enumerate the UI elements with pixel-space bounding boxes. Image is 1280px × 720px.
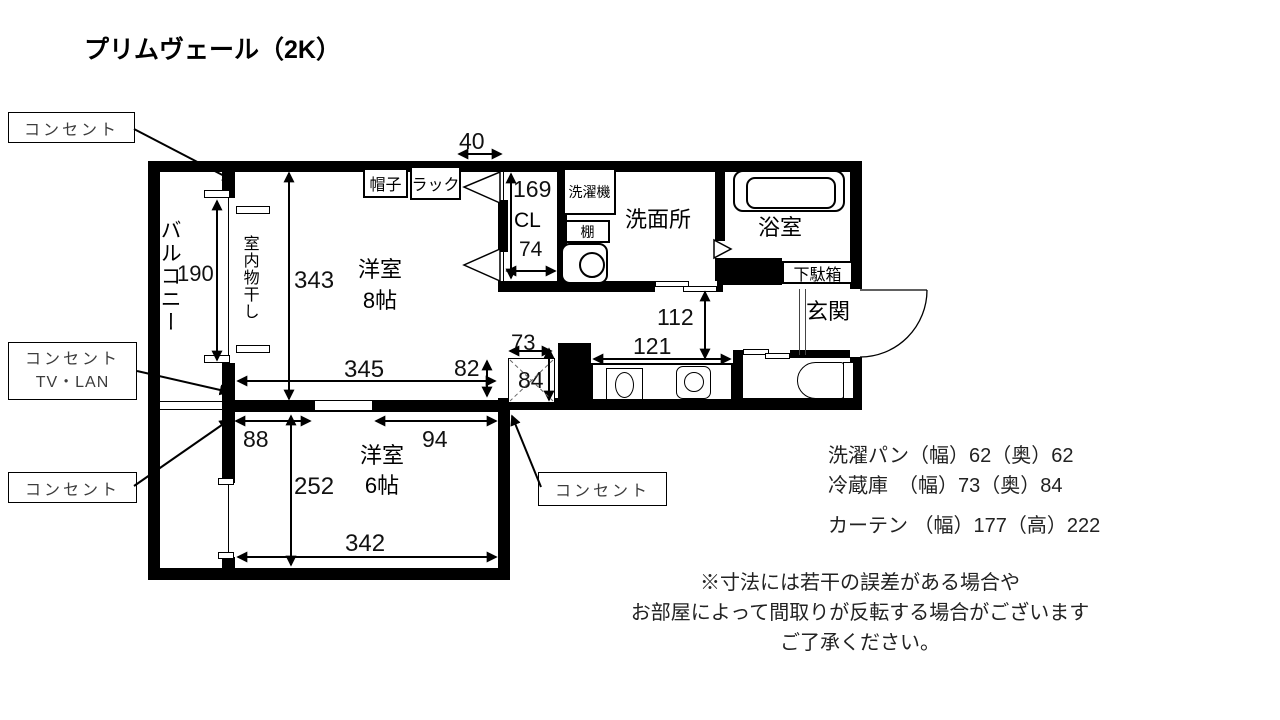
shoe-cabinet-label: 下駄箱 xyxy=(793,261,841,285)
dim-room6-depth: 252 xyxy=(294,473,334,501)
wall-closet-left-segment xyxy=(498,200,508,252)
washroom-sliding-door xyxy=(683,286,717,292)
rack-label: ラック xyxy=(412,171,460,195)
spec-line-laundry-pan: 洗濯パン（幅）62（奥）62 xyxy=(828,439,1074,468)
closet-door-swing-top xyxy=(464,172,500,203)
entrance-door xyxy=(860,290,927,357)
toilet-sliding-door xyxy=(765,353,790,359)
spec-line-curtain: カーテン （幅）177（高）222 xyxy=(828,509,1100,538)
dim-room8-corner: 82 xyxy=(454,355,480,382)
callout-pointer-lines xyxy=(134,129,541,487)
outlet-callout-top-left: コンセント xyxy=(8,112,135,143)
wall-bottom xyxy=(148,568,510,580)
toilet-bowl xyxy=(797,362,844,399)
washroom-label: 洗面所 xyxy=(625,208,691,232)
room8-size: 8帖 xyxy=(350,289,410,313)
room6-size: 6帖 xyxy=(352,474,412,498)
stove-burner xyxy=(684,372,704,392)
rack-box: ラック xyxy=(410,166,461,200)
dim-room8-width: 345 xyxy=(344,356,384,384)
hat-shelf-box: 帽子 xyxy=(363,168,408,198)
outlet-callout-label: コンセント xyxy=(25,476,120,500)
closet-label: CL xyxy=(514,209,541,232)
bathtub-inner xyxy=(746,177,836,209)
entrance-label: 玄関 xyxy=(806,300,850,324)
drying-pole-bracket-bottom xyxy=(236,345,270,353)
outlet-tv-lan-callout: コンセント TV・LAN xyxy=(8,342,137,400)
entrance-step-line-1 xyxy=(799,289,800,355)
shelf-label: 棚 xyxy=(581,222,595,242)
balcony-partition xyxy=(160,401,222,410)
dim-room6-wall-left: 88 xyxy=(243,426,269,453)
bathroom-label: 浴室 xyxy=(758,216,802,240)
window-pane-bar xyxy=(218,478,234,485)
wall-room6-right xyxy=(498,410,510,580)
room6-name: 洋室 xyxy=(352,444,412,468)
window-pane-bar xyxy=(204,355,230,363)
dim-top-opening: 40 xyxy=(459,128,485,155)
outlet-callout-label: コンセント xyxy=(25,348,120,371)
closet-door-swing-bottom xyxy=(464,249,500,281)
dim-room6-width: 342 xyxy=(345,530,385,558)
shoe-cabinet-box: 下駄箱 xyxy=(782,261,853,284)
dim-fridge-depth: 84 xyxy=(518,367,544,394)
outlet-callout-middle: コンセント xyxy=(538,472,667,506)
dim-fridge-width: 73 xyxy=(511,330,535,356)
window-room6-centerline xyxy=(228,483,229,557)
hat-shelf-label: 帽子 xyxy=(369,171,401,195)
dim-hall-depth: 112 xyxy=(657,304,694,331)
note-line-1: ※寸法には若干の誤差がある場合や xyxy=(600,568,1120,598)
dim-balcony-window: 190 xyxy=(177,261,214,287)
dim-closet-width: 74 xyxy=(519,238,542,262)
wall-toilet-left xyxy=(733,350,743,410)
window-pane-bar xyxy=(218,552,234,559)
outlet-callout-label: コンセント xyxy=(24,116,119,140)
disclaimer-note: ※寸法には若干の誤差がある場合や お部屋によって間取りが反転する場合がございます… xyxy=(600,568,1120,658)
page-title: プリムヴェール（2K） xyxy=(84,30,341,66)
shelf-box: 棚 xyxy=(565,220,610,243)
closet-door-line-bottom xyxy=(503,250,504,282)
toilet-tank xyxy=(843,362,854,399)
kitchen-sink-basin xyxy=(615,372,634,398)
dim-closet-height: 169 xyxy=(513,176,551,203)
dim-room8-depth: 343 xyxy=(294,267,334,295)
note-line-3: ご了承ください。 xyxy=(600,628,1120,658)
closet-door-line-top xyxy=(503,172,504,202)
washing-machine-box: 洗濯機 xyxy=(563,168,616,215)
outlet-callout-bottom-left: コンセント xyxy=(8,472,137,503)
dim-room6-wall-right: 94 xyxy=(422,426,448,453)
wall-entry-block xyxy=(715,258,782,285)
note-line-2: お部屋によって間取りが反転する場合がございます xyxy=(600,598,1120,628)
entrance-doorway xyxy=(850,289,862,357)
floorplan-page: プリムヴェール（2K） 帽子 ラック 洗濯機 棚 xyxy=(0,0,1280,720)
drying-pole-bracket-top xyxy=(236,206,270,214)
pointer-outlet-middle xyxy=(512,416,541,487)
outlet-callout-label: コンセント xyxy=(555,477,650,501)
wall-bath-left xyxy=(715,161,725,241)
washbasin-bowl xyxy=(579,252,605,278)
tv-lan-label: TV・LAN xyxy=(36,371,110,394)
dim-counter-width: 121 xyxy=(633,333,671,360)
washing-machine-label: 洗濯機 xyxy=(569,182,611,202)
spec-line-refrigerator: 冷蔵庫 （幅）73（奥）84 xyxy=(828,469,1063,498)
window-room8-centerline xyxy=(228,198,229,363)
room-divider-opening xyxy=(314,400,373,411)
kitchen-column xyxy=(558,343,591,405)
entrance-door-arc xyxy=(860,290,927,357)
window-pane-bar xyxy=(204,190,230,198)
bathroom-door-swing xyxy=(714,240,731,258)
indoor-drying-label: 室内物干し xyxy=(240,235,258,320)
room8-name: 洋室 xyxy=(350,258,410,282)
